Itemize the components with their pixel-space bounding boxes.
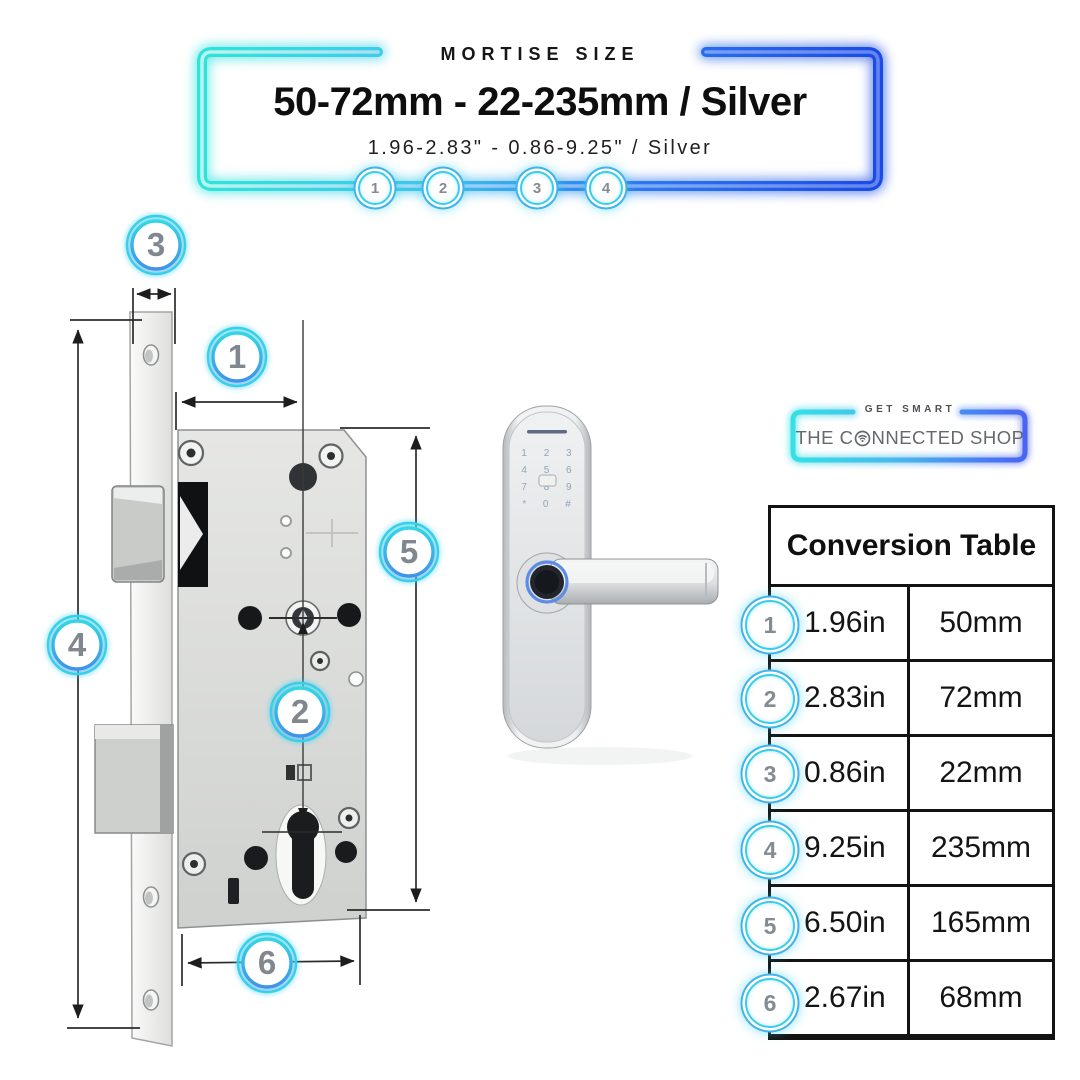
banner-marker-2-label: 2: [439, 180, 447, 197]
table-row-badge-3-label: 3: [764, 761, 777, 788]
brand-tagline: GET SMART: [790, 404, 1030, 415]
callout-3-label: 3: [147, 226, 165, 263]
table-row-badge-5: 5: [745, 901, 795, 951]
callout-2: 2: [271, 683, 329, 741]
keypad-row-1: 1 2 3: [521, 448, 578, 459]
table-row-badge-4: 4: [745, 825, 795, 875]
banner-marker-1: 1: [358, 171, 392, 205]
mm-cell: 235mm: [910, 812, 1052, 884]
table-row-badge-6: 6: [745, 978, 795, 1028]
connected-shop-o-icon: [854, 430, 871, 447]
fingerprint-sensor: [527, 562, 567, 602]
conversion-table-title: Conversion Table: [771, 508, 1052, 587]
table-row-badge-2-label: 2: [764, 686, 777, 713]
mm-cell: 22mm: [910, 737, 1052, 809]
faceplate-screw-hole: [144, 990, 159, 1010]
table-row-badge-2: 2: [745, 674, 795, 724]
callout-5: 5: [380, 523, 438, 581]
brand-name: THE CNNECTED SHOP: [780, 424, 1040, 452]
euro-cylinder-keyhole: [276, 805, 326, 905]
callout-5-label: 5: [400, 533, 418, 570]
banner-marker-3: 3: [520, 171, 554, 205]
callout-2-label: 2: [291, 693, 309, 730]
banner-subtitle: 1.96-2.83" - 0.86-9.25" / Silver: [190, 137, 890, 160]
smart-lock-product-image: 1 2 3 4 5 6 7 8 9 * 0 #: [475, 385, 765, 785]
callout-4-label: 4: [68, 626, 87, 663]
banner-eyebrow: MORTISE SIZE: [190, 44, 890, 65]
table-row-badge-6-label: 6: [764, 990, 777, 1017]
banner-marker-3-label: 3: [533, 180, 541, 197]
mortise-lock-diagram: 3 1 4 5 2 6: [30, 212, 460, 1070]
callout-6-label: 6: [258, 944, 276, 981]
infographic-canvas: MORTISE SIZE 50-72mm - 22-235mm / Silver…: [0, 0, 1080, 1080]
table-row: 9.25in 235mm: [771, 812, 1052, 887]
table-row: 2.67in 68mm: [771, 962, 1052, 1037]
mm-cell: 50mm: [910, 587, 1052, 659]
table-row: 0.86in 22mm: [771, 737, 1052, 812]
callout-6: 6: [238, 934, 296, 992]
keypad-row-2: 4 5 6: [521, 465, 578, 476]
callout-1: 1: [208, 328, 266, 386]
keypad-logo-badge: [539, 475, 556, 486]
mm-cell: 165mm: [910, 887, 1052, 959]
mm-cell: 68mm: [910, 962, 1052, 1034]
keypad-row-4: * 0 #: [522, 499, 578, 510]
table-row: 2.83in 72mm: [771, 662, 1052, 737]
brand-name-pre: THE C: [796, 427, 854, 449]
table-row: 6.50in 165mm: [771, 887, 1052, 962]
table-row-badge-4-label: 4: [764, 837, 777, 864]
latch-bolt: [112, 486, 164, 582]
banner-marker-4: 4: [589, 171, 623, 205]
callout-1-label: 1: [228, 338, 246, 375]
banner-marker-1-label: 1: [371, 180, 379, 197]
table-row-badge-5-label: 5: [764, 913, 777, 940]
banner-marker-2: 2: [426, 171, 460, 205]
deadbolt: [95, 725, 173, 833]
faceplate-screw-hole: [144, 887, 159, 907]
faceplate-screw-hole: [144, 345, 159, 365]
conversion-table: Conversion Table 1.96in 50mm 2.83in 72mm…: [768, 505, 1055, 1040]
status-led-strip: [527, 430, 567, 434]
lock-faceplate: [130, 312, 172, 1046]
lever-handle: [550, 559, 718, 604]
brand-name-post: NNECTED SHOP: [872, 427, 1025, 449]
table-row-badge-1-label: 1: [764, 612, 777, 639]
callout-4: 4: [48, 616, 106, 674]
table-row-badge-1: 1: [745, 600, 795, 650]
table-row: 1.96in 50mm: [771, 587, 1052, 662]
banner-marker-4-label: 4: [602, 180, 610, 197]
mm-cell: 72mm: [910, 662, 1052, 734]
banner-title: 50-72mm - 22-235mm / Silver: [140, 80, 940, 125]
table-row-badge-3: 3: [745, 749, 795, 799]
callout-3: 3: [127, 216, 185, 274]
